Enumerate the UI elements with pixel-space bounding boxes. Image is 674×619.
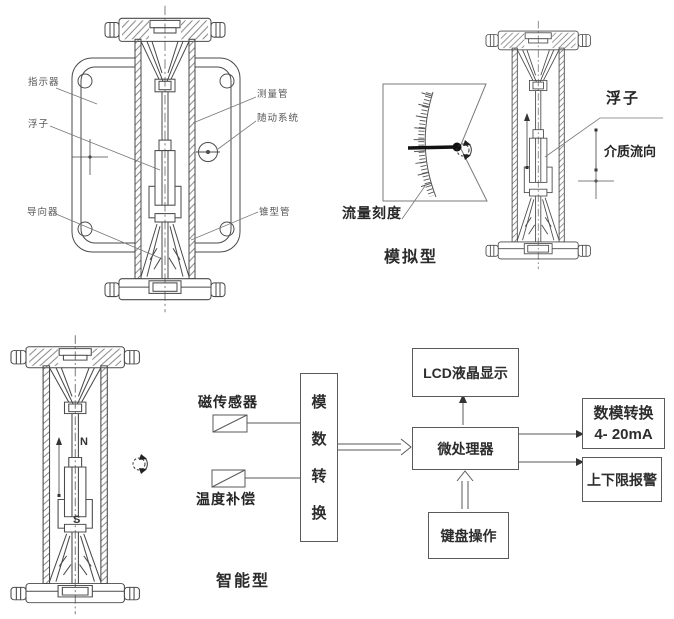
block-ad-converter: 模数转换: [300, 373, 338, 542]
label-flow-direction: 介质流向: [604, 141, 656, 160]
block-ad-converter-label: 模数转换: [311, 384, 327, 532]
front-meter-body: [105, 6, 225, 313]
label-guide: 导向器: [27, 204, 59, 218]
label-pole-n: N: [80, 436, 88, 448]
block-limit-alarm: 上下限报警: [582, 457, 662, 502]
label-measuring-tube: 测量管: [257, 86, 289, 100]
smart-meter-body: [11, 335, 139, 614]
label-pole-s: S: [73, 514, 80, 526]
caption-smart-type: 智能型: [216, 567, 270, 591]
label-indicator: 指示器: [28, 74, 60, 88]
label-temp-compensation: 温度补偿: [196, 489, 256, 509]
block-keyboard: 键盘操作: [428, 512, 509, 559]
block-da-converter-line1: 数模转换: [593, 403, 653, 424]
label-follow-system: 随动系统: [257, 110, 299, 124]
block-da-converter: 数模转换 4- 20mA: [582, 398, 665, 449]
rotation-icon-smart: [133, 454, 147, 474]
block-lcd-display-label: LCD液晶显示: [423, 363, 508, 383]
block-microprocessor: 微处理器: [412, 427, 519, 470]
rotameter-diagram: 指示器 浮子 导向器 测量管 随动系统 锥型管 流量刻度 模拟型 浮子 介质流向…: [0, 0, 674, 619]
label-flow-scale: 流量刻度: [342, 203, 402, 223]
label-magnetic-sensor: 磁传感器: [198, 392, 258, 412]
block-microprocessor-label: 微处理器: [438, 439, 494, 459]
analog-meter-body: [486, 21, 590, 269]
block-limit-alarm-label: 上下限报警: [587, 470, 657, 490]
gauge-needle: [408, 147, 455, 148]
block-da-converter-line2: 4- 20mA: [593, 424, 653, 445]
label-cone-tube: 锥型管: [259, 204, 291, 218]
label-float-front: 浮子: [28, 116, 49, 130]
block-lcd-display: LCD液晶显示: [412, 348, 519, 397]
block-keyboard-label: 键盘操作: [441, 526, 497, 546]
block-diagram-connectors: [212, 394, 584, 509]
caption-analog-type: 模拟型: [384, 243, 438, 267]
label-float-analog: 浮子: [606, 87, 640, 108]
